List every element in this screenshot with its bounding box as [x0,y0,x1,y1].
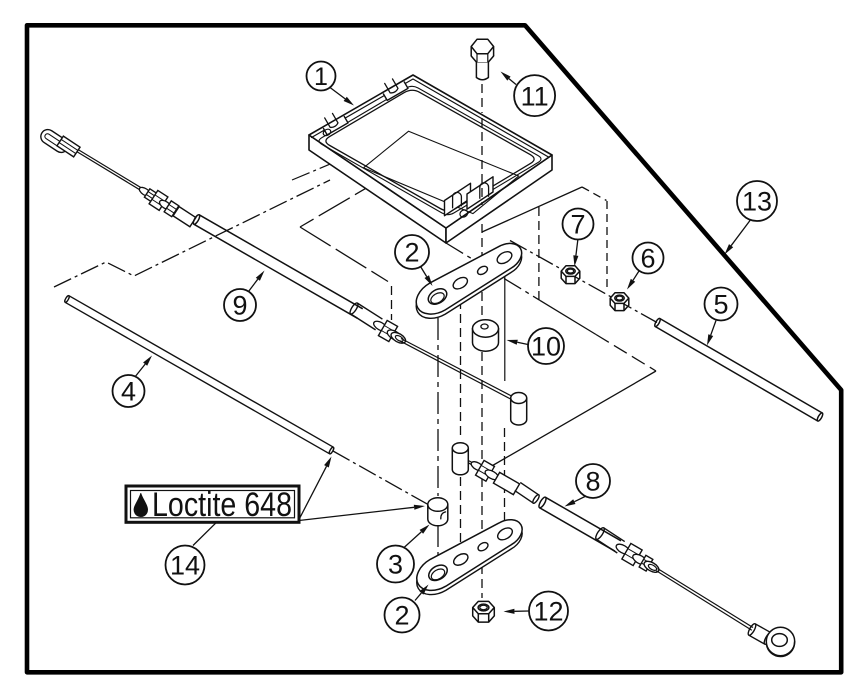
svg-text:8: 8 [585,467,600,497]
svg-text:14: 14 [170,551,200,581]
svg-text:9: 9 [232,291,247,321]
svg-text:2: 2 [404,238,419,268]
svg-text:11: 11 [521,81,549,111]
svg-text:7: 7 [570,210,585,240]
svg-text:3: 3 [388,550,403,580]
svg-text:4: 4 [121,377,136,407]
svg-text:1: 1 [314,63,328,91]
svg-text:12: 12 [533,597,563,627]
svg-text:Loctite 648: Loctite 648 [152,486,292,524]
svg-text:10: 10 [531,332,561,362]
svg-text:6: 6 [640,244,655,274]
svg-text:13: 13 [742,187,772,217]
svg-text:5: 5 [713,290,728,320]
svg-text:2: 2 [394,601,409,631]
